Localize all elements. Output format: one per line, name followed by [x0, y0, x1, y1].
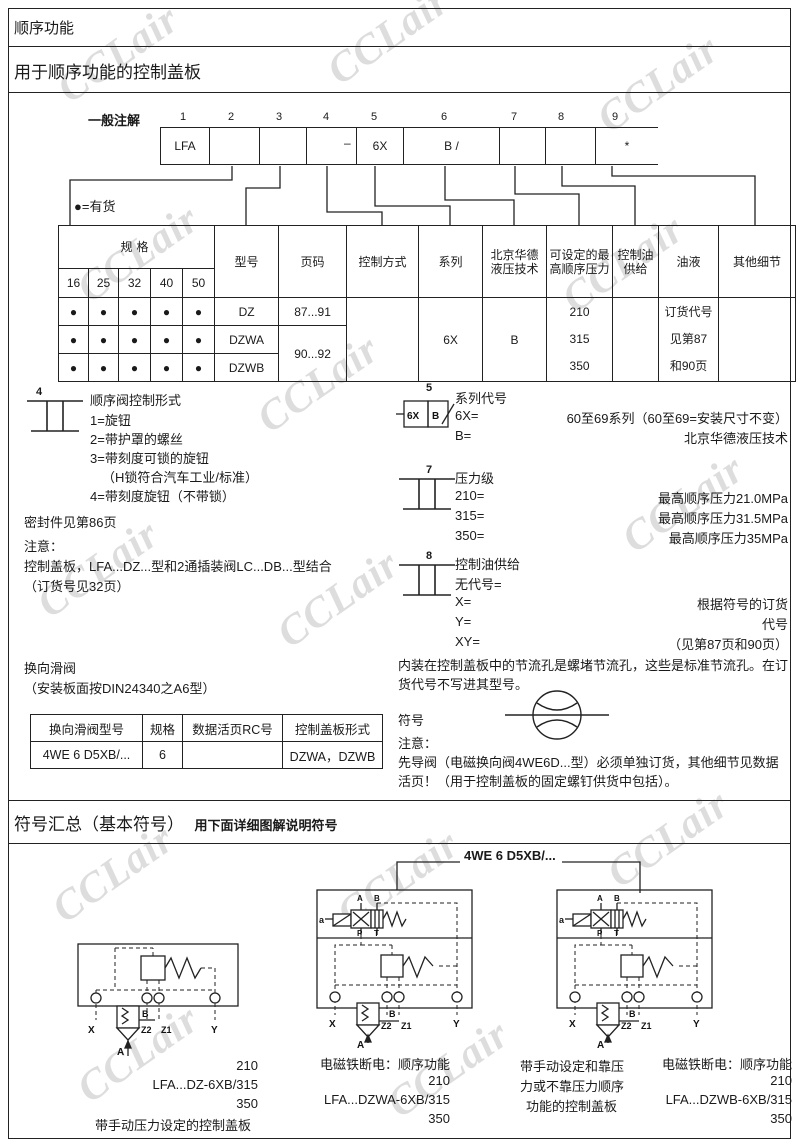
- header-size-32: 32: [119, 269, 151, 298]
- code-cell-1: LFA: [161, 128, 210, 164]
- section-title: 用于顺序功能的控制盖板: [14, 58, 201, 83]
- port-x-label: X: [569, 1019, 576, 1030]
- port-z2-label: Z2: [141, 1025, 152, 1035]
- item4-option: 3=带刻度可锁的旋钮: [90, 448, 209, 467]
- port-z1-label: Z1: [161, 1025, 172, 1035]
- item4-option: 2=带护罩的螺丝: [90, 429, 183, 448]
- notice-label: 注意：: [24, 536, 63, 555]
- code-cell-3: [260, 128, 307, 164]
- frame-line: [8, 1138, 791, 1139]
- availability-dot: ●: [119, 298, 151, 326]
- item7-row: 315= 最高顺序压力31.5MPa: [455, 508, 788, 527]
- frame-line: [8, 46, 791, 47]
- item5-symbol-b: B: [432, 411, 439, 422]
- valve-port-t-label: T: [374, 929, 379, 938]
- port-a-label: A: [597, 1040, 604, 1051]
- availability-dot: ●: [119, 326, 151, 354]
- availability-dot: ●: [89, 326, 119, 354]
- model-dz: DZ: [215, 298, 279, 326]
- item8-row: XY= （见第87页和90页）: [455, 634, 788, 653]
- ordering-code-boxes: LFA 6X B / *: [160, 127, 658, 165]
- frame-line: [8, 8, 791, 9]
- symbols-title-main: 符号汇总（基本符号）: [14, 815, 184, 834]
- item7-position-symbol: [398, 476, 456, 514]
- header-spec: 规格: [59, 226, 215, 269]
- availability-dot: ●: [59, 354, 89, 382]
- item7-desc: 最高顺序压力35MPa: [669, 528, 788, 547]
- pressure-350: 350: [547, 353, 612, 380]
- caption-dzwb-line: 210: [642, 1073, 800, 1088]
- item7-code: 350=: [455, 528, 484, 547]
- availability-dot: ●: [119, 354, 151, 382]
- pressure-315: 315: [547, 326, 612, 353]
- item5-desc: 60至69系列（60至69=安装尺寸不变）: [567, 408, 788, 427]
- item5-row: 6X= 60至69系列（60至69=安装尺寸不变）: [455, 408, 788, 427]
- spool-header: 规格: [143, 715, 183, 742]
- code-pos-6: 6: [441, 111, 447, 123]
- availability-dot: ●: [151, 326, 183, 354]
- pressure-cell: 210 315 350: [547, 298, 613, 382]
- symbols-title-suffix: 用下面详细图解说明符号: [194, 818, 337, 833]
- item8-code: XY=: [455, 634, 480, 653]
- port-b-label: B: [389, 1009, 396, 1019]
- ordering-data-table: 规格 型号 页码 控制方式 系列 北京华德液压技术 可设定的最高顺序压力 控制油…: [58, 225, 796, 382]
- notice-line: 控制盖板，LFA...DZ...型和2通插装阀LC...DB...型结合: [24, 556, 332, 575]
- fluid-line: 订货代号: [659, 299, 718, 326]
- caption-dz-line: 350: [58, 1096, 270, 1111]
- spool-header: 数据活页RC号: [183, 715, 283, 742]
- availability-dot: ●: [59, 298, 89, 326]
- spool-cover-type: DZWA，DZWB: [283, 742, 383, 769]
- solenoid-label: a: [319, 915, 325, 925]
- valve-port-a-label: A: [357, 894, 363, 903]
- header-fluid: 油液: [659, 226, 719, 298]
- port-z2-label: Z2: [621, 1021, 632, 1031]
- other-cell: [719, 298, 796, 382]
- item8-title: 控制油供给: [455, 554, 520, 573]
- item4-option: （H锁符合汽车工业/标准）: [102, 467, 258, 486]
- schematic-dz: X Z2 Z1 Y B A: [55, 936, 305, 1064]
- availability-legend: ●=有货: [74, 196, 115, 215]
- header-other: 其他细节: [719, 226, 796, 298]
- item7-number: 7: [426, 464, 432, 476]
- table-row: ● ● ● ● ● DZ 87...91 6X B 210 315 350 订货…: [59, 298, 796, 326]
- port-b-label: B: [629, 1009, 636, 1019]
- item5-code: 6X=: [455, 408, 479, 427]
- item8-row: X= 根据符号的订货: [455, 594, 788, 613]
- item4-number: 4: [36, 386, 42, 398]
- code-pos-3: 3: [276, 111, 282, 123]
- valve-port-p-label: P: [597, 929, 603, 938]
- orifice-symbol: [505, 688, 609, 742]
- header-size-25: 25: [89, 269, 119, 298]
- item7-code: 315=: [455, 508, 484, 527]
- valve-port-b-label: B: [614, 894, 620, 903]
- notice-line: （订货号见32页）: [24, 576, 129, 595]
- availability-dot: ●: [59, 326, 89, 354]
- spool-subtitle: （安装板面按DIN24340之A6型）: [24, 678, 215, 697]
- valve-port-a-label: A: [597, 894, 603, 903]
- caption-note-line: 功能的控制盖板: [526, 1096, 617, 1115]
- port-a-label: A: [117, 1047, 124, 1058]
- model-dzwa: DZWA: [215, 326, 279, 354]
- item4-position-symbol: [26, 398, 84, 436]
- oil-cell: [613, 298, 659, 382]
- item4-option: 1=旋钮: [90, 410, 131, 429]
- item8-code: 无代号=: [455, 574, 502, 593]
- item8-desc: 根据符号的订货: [697, 594, 788, 613]
- pilot-valve-label: 4WE 6 D5XB/...: [462, 848, 558, 863]
- spool-size: 6: [143, 742, 183, 769]
- spool-title: 换向滑阀: [24, 658, 76, 677]
- item8-code: X=: [455, 594, 471, 613]
- page-title: 顺序功能: [14, 17, 74, 38]
- item5-symbol-6x: 6X: [407, 411, 420, 422]
- frame-line: [8, 800, 791, 801]
- code-pos-8: 8: [558, 111, 564, 123]
- solenoid-label: a: [559, 915, 565, 925]
- header-size-50: 50: [183, 269, 215, 298]
- code-pos-4: 4: [323, 111, 329, 123]
- availability-dot: ●: [183, 326, 215, 354]
- caption-dzwb-line: 电磁铁断电：顺序功能: [642, 1054, 792, 1073]
- header-size-16: 16: [59, 269, 89, 298]
- code-cell-2: [210, 128, 260, 164]
- code-cell-8: [546, 128, 596, 164]
- model-dzwb: DZWB: [215, 354, 279, 382]
- valve-port-p-label: P: [357, 929, 363, 938]
- port-a-label: A: [357, 1040, 364, 1051]
- item7-desc: 最高顺序压力21.0MPa: [658, 488, 788, 507]
- item7-row: 210= 最高顺序压力21.0MPa: [455, 488, 788, 507]
- header-oil: 控制油供给: [613, 226, 659, 298]
- pilot-valve-note: 先导阀（电磁换向阀4WE6D...型）必须单独订货，其他细节见数据活页！（用于控…: [398, 753, 790, 791]
- caption-note-line: 带手动设定和靠压: [520, 1056, 624, 1075]
- port-y-label: Y: [453, 1019, 460, 1030]
- port-z1-label: Z1: [401, 1021, 412, 1031]
- watermark: CCLair: [589, 25, 729, 143]
- series-cell: 6X: [419, 298, 483, 382]
- port-b-label: B: [142, 1009, 149, 1019]
- header-size-40: 40: [151, 269, 183, 298]
- port-z2-label: Z2: [381, 1021, 392, 1031]
- port-x-label: X: [329, 1019, 336, 1030]
- catalog-page: CCLair CCLair CCLair CCLair CCLair CCLai…: [0, 0, 800, 1146]
- frame-line: [8, 843, 791, 844]
- pressure-210: 210: [547, 299, 612, 326]
- code-pos-2: 2: [228, 111, 234, 123]
- item8-desc: 代号: [762, 614, 788, 633]
- header-series: 系列: [419, 226, 483, 298]
- fluid-line: 和90页: [659, 353, 718, 380]
- tech-cell: B: [483, 298, 547, 382]
- header-page: 页码: [279, 226, 347, 298]
- seals-note: 密封件见第86页: [24, 512, 116, 531]
- code-cell-6: B /: [404, 128, 500, 164]
- spool-valve-table: 换向滑阀型号 规格 数据活页RC号 控制盖板形式 4WE 6 D5XB/... …: [30, 714, 383, 769]
- item5-code: B=: [455, 428, 471, 447]
- control-mode-cell: [347, 298, 419, 382]
- code-pos-5: 5: [371, 111, 377, 123]
- availability-dot: ●: [183, 298, 215, 326]
- code-pos-9: 9: [612, 111, 618, 123]
- code-dash: –: [344, 136, 351, 150]
- code-cell-9: *: [596, 128, 658, 164]
- schematic-dzwb: A B P T a X Z2 Z1 Y B A: [545, 885, 760, 1065]
- item8-position-symbol: [398, 562, 456, 600]
- availability-dot: ●: [89, 354, 119, 382]
- item7-title: 压力级: [455, 468, 494, 487]
- availability-dot: ●: [151, 298, 183, 326]
- item5-title: 系列代号: [455, 388, 507, 407]
- spool-header: 控制盖板形式: [283, 715, 383, 742]
- availability-dot: ●: [183, 354, 215, 382]
- valve-port-t-label: T: [614, 929, 619, 938]
- port-x-label: X: [88, 1025, 95, 1036]
- fluid-cell: 订货代号 见第87 和90页: [659, 298, 719, 382]
- caption-dzwb-code: LFA...DZWB-6XB/315: [642, 1092, 792, 1107]
- item7-desc: 最高顺序压力31.5MPa: [658, 508, 788, 527]
- item5-row: B= 北京华德液压技术: [455, 428, 788, 447]
- item5-number: 5: [426, 382, 432, 394]
- port-y-label: Y: [211, 1025, 218, 1036]
- code-cell-7: [500, 128, 546, 164]
- item7-row: 350= 最高顺序压力35MPa: [455, 528, 788, 547]
- item5-series-symbol: 6X B: [396, 398, 460, 430]
- schematic-dzwa: A B P T a X Z2 Z1 Y B A: [305, 885, 520, 1065]
- caption-dzwa-code: LFA...DZWA-6XB/315: [240, 1092, 450, 1107]
- caption-dz-code: LFA...DZ-6XB/315: [58, 1077, 258, 1092]
- frame-line: [8, 92, 791, 93]
- caption-dzwa-line: 电磁铁断电：顺序功能: [240, 1054, 450, 1073]
- frame-line: [8, 8, 9, 1138]
- code-cell-5: 6X: [357, 128, 404, 164]
- item8-code: Y=: [455, 614, 471, 633]
- item8-row: Y= 代号: [455, 614, 788, 633]
- caption-dzwa-line: 210: [240, 1073, 460, 1088]
- header-control: 控制方式: [347, 226, 419, 298]
- item4-title: 顺序阀控制形式: [90, 390, 181, 409]
- symbols-section-title: 符号汇总（基本符号） 用下面详细图解说明符号: [14, 810, 337, 835]
- code-pos-7: 7: [511, 111, 517, 123]
- pages-dz: 87...91: [279, 298, 347, 326]
- header-model: 型号: [215, 226, 279, 298]
- code-pos-1: 1: [180, 111, 186, 123]
- orifice-notice-label: 注意：: [398, 733, 437, 752]
- caption-dzwa-line: 350: [240, 1111, 456, 1126]
- availability-dot: ●: [89, 298, 119, 326]
- spool-rc: [183, 742, 283, 769]
- item8-desc: （见第87页和90页）: [668, 634, 788, 653]
- valve-port-b-label: B: [374, 894, 380, 903]
- item4-option: 4=带刻度旋钮（不带锁）: [90, 486, 235, 505]
- caption-note-line: 力或不靠压力顺序: [520, 1076, 624, 1095]
- item5-desc: 北京华德液压技术: [684, 428, 788, 447]
- pages-dzw: 90...92: [279, 326, 347, 382]
- fluid-line: 见第87: [659, 326, 718, 353]
- port-y-label: Y: [693, 1019, 700, 1030]
- header-tech: 北京华德液压技术: [483, 226, 547, 298]
- availability-dot: ●: [151, 354, 183, 382]
- spool-model: 4WE 6 D5XB/...: [31, 742, 143, 769]
- watermark: CCLair: [319, 0, 459, 95]
- code-connector-lines: [58, 166, 795, 225]
- port-z1-label: Z1: [641, 1021, 652, 1031]
- caption-dzwb-line: 350: [642, 1111, 796, 1126]
- header-pressure: 可设定的最高顺序压力: [547, 226, 613, 298]
- ordering-label: 一般注解: [88, 110, 140, 129]
- symbol-label: 符号: [398, 710, 424, 729]
- spool-header: 换向滑阀型号: [31, 715, 143, 742]
- table-row: 4WE 6 D5XB/... 6 DZWA，DZWB: [31, 742, 383, 769]
- item8-row: 无代号=: [455, 574, 788, 593]
- item7-code: 210=: [455, 488, 484, 507]
- item8-number: 8: [426, 550, 432, 562]
